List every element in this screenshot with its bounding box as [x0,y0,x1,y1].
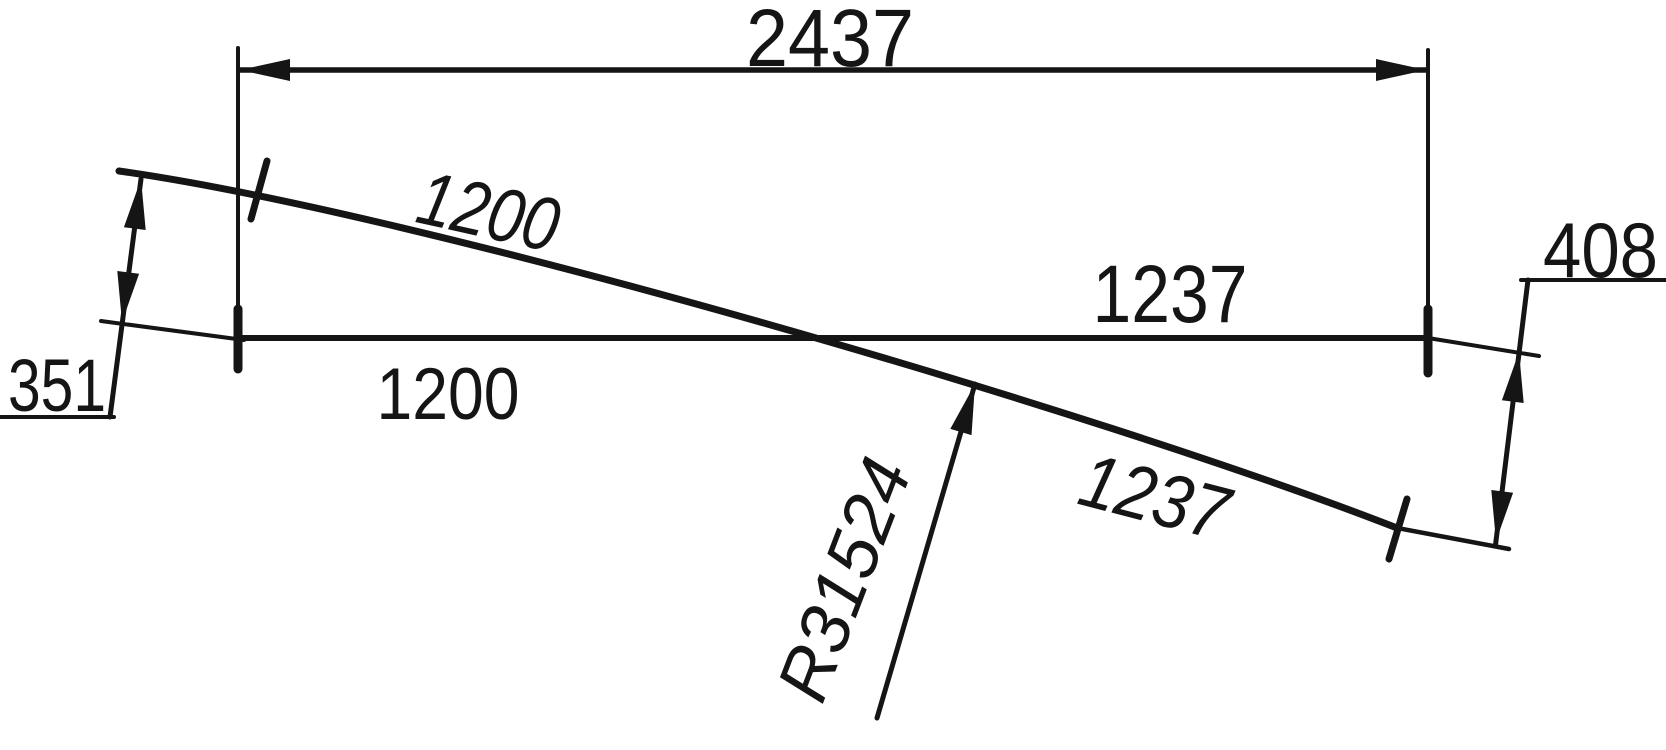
dimension-text-radius: R31524 [762,448,927,712]
dimension-text-base-right: 1237 [1093,249,1248,340]
dimension-text-base-left: 1200 [377,354,520,435]
arrowhead-radius [950,384,975,435]
arrowhead-total-left [240,59,290,81]
dimension-text-left-rise: 351 [8,344,106,427]
arrowhead-total-right [1376,59,1426,81]
arc-endpoint-tick-left [251,161,267,219]
technical-drawing-canvas: 2437 351 408 1200 1237 1200 1237 R31524 [0,0,1666,750]
dimension-text-total: 2437 [746,0,914,84]
drawing-svg: 2437 351 408 1200 1237 1200 1237 R31524 [0,0,1666,750]
dimension-text-arc-right: 1237 [1071,437,1240,557]
dimension-text-right-drop: 408 [1543,206,1658,294]
arrowhead-left-rise-down [117,271,139,322]
arc-end-extension-right [1397,528,1509,549]
dimension-text-arc-left: 1200 [410,155,567,269]
